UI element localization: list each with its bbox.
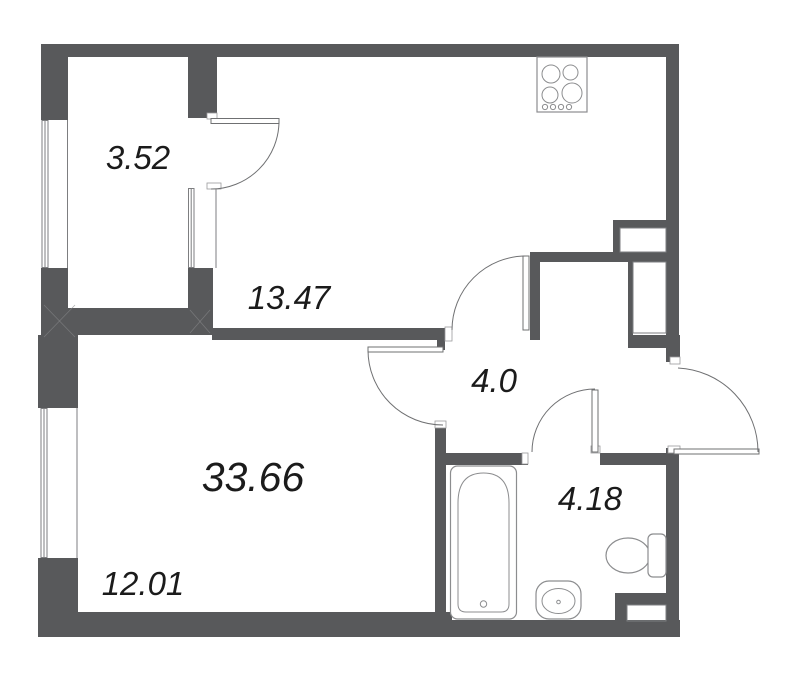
door-leaf xyxy=(368,347,443,352)
door-swing-arc xyxy=(452,256,526,330)
wall-left-mid-b xyxy=(38,335,78,408)
wall-living-bathroom xyxy=(435,428,446,620)
wall-right-lower xyxy=(666,448,679,637)
door-swing-arc xyxy=(678,368,758,452)
wall-bottom-right xyxy=(452,620,680,637)
wall-niche-left xyxy=(615,605,627,623)
hallway-area-label: 4.0 xyxy=(471,362,518,399)
wall-balcony-divider-lower xyxy=(188,268,213,335)
duct-niche-bathroom xyxy=(627,605,666,621)
duct-shaft-upper xyxy=(620,228,666,252)
sink-icon xyxy=(536,581,581,619)
kitchen-door xyxy=(445,256,529,341)
wall-left-mid-a xyxy=(41,268,68,335)
door-leaf xyxy=(592,390,598,452)
floor-plan-drawing: 3.52 13.47 4.0 33.66 4.18 12.01 xyxy=(0,0,800,682)
door-jamb xyxy=(670,357,680,364)
wall-left-upper xyxy=(41,57,68,120)
floor-plan-page: 3.52 13.47 4.0 33.66 4.18 12.01 xyxy=(0,0,800,682)
balcony-door xyxy=(207,113,279,189)
balcony-window xyxy=(41,120,68,268)
living-room-door xyxy=(368,347,446,428)
wall-shaft1-top xyxy=(613,220,666,228)
kitchen-area-label: 13.47 xyxy=(248,279,332,316)
door-swing-arc xyxy=(532,389,595,452)
door-jamb xyxy=(522,453,528,464)
bathroom-area-label: 4.18 xyxy=(558,480,623,517)
duct-shaft-lower xyxy=(633,262,666,333)
living-room-window xyxy=(40,408,78,558)
walls xyxy=(38,44,680,637)
total-area-label: 33.66 xyxy=(202,454,305,500)
room-labels: 3.52 13.47 4.0 33.66 4.18 12.01 xyxy=(102,139,623,602)
wall-right-upper xyxy=(666,44,679,362)
wall-hallway-top xyxy=(530,252,666,262)
door-leaf xyxy=(211,119,279,124)
door-swing-arc xyxy=(368,350,443,425)
wall-shaft1-left xyxy=(613,220,620,258)
door-jamb xyxy=(445,327,452,341)
toilet-tank xyxy=(648,534,666,577)
wall-top xyxy=(41,44,679,57)
wall-balcony-divider-upper xyxy=(188,57,217,118)
balcony-divider-window xyxy=(188,188,217,268)
entrance-door xyxy=(668,357,759,454)
wall-niche-top xyxy=(615,593,677,605)
bathroom-door xyxy=(522,389,600,464)
wall-bathroom-top-left xyxy=(445,453,528,465)
stove-icon xyxy=(537,57,587,112)
wall-hallway-left xyxy=(530,252,540,340)
wall-kitchen-living xyxy=(212,328,445,340)
wall-bathroom-top-right xyxy=(600,453,666,465)
door-leaf xyxy=(523,256,529,330)
toilet-bowl xyxy=(606,538,650,573)
toilet-icon xyxy=(606,534,666,577)
balcony-area-label: 3.52 xyxy=(106,139,170,176)
living-room-area-label: 12.01 xyxy=(102,565,185,602)
wall-left-lower xyxy=(38,558,78,612)
bathtub-icon xyxy=(451,466,517,619)
door-swing-arc xyxy=(211,121,279,189)
wall-bottom-left xyxy=(38,612,452,637)
door-leaf xyxy=(674,449,759,454)
wall-shaft2-left xyxy=(628,258,633,335)
